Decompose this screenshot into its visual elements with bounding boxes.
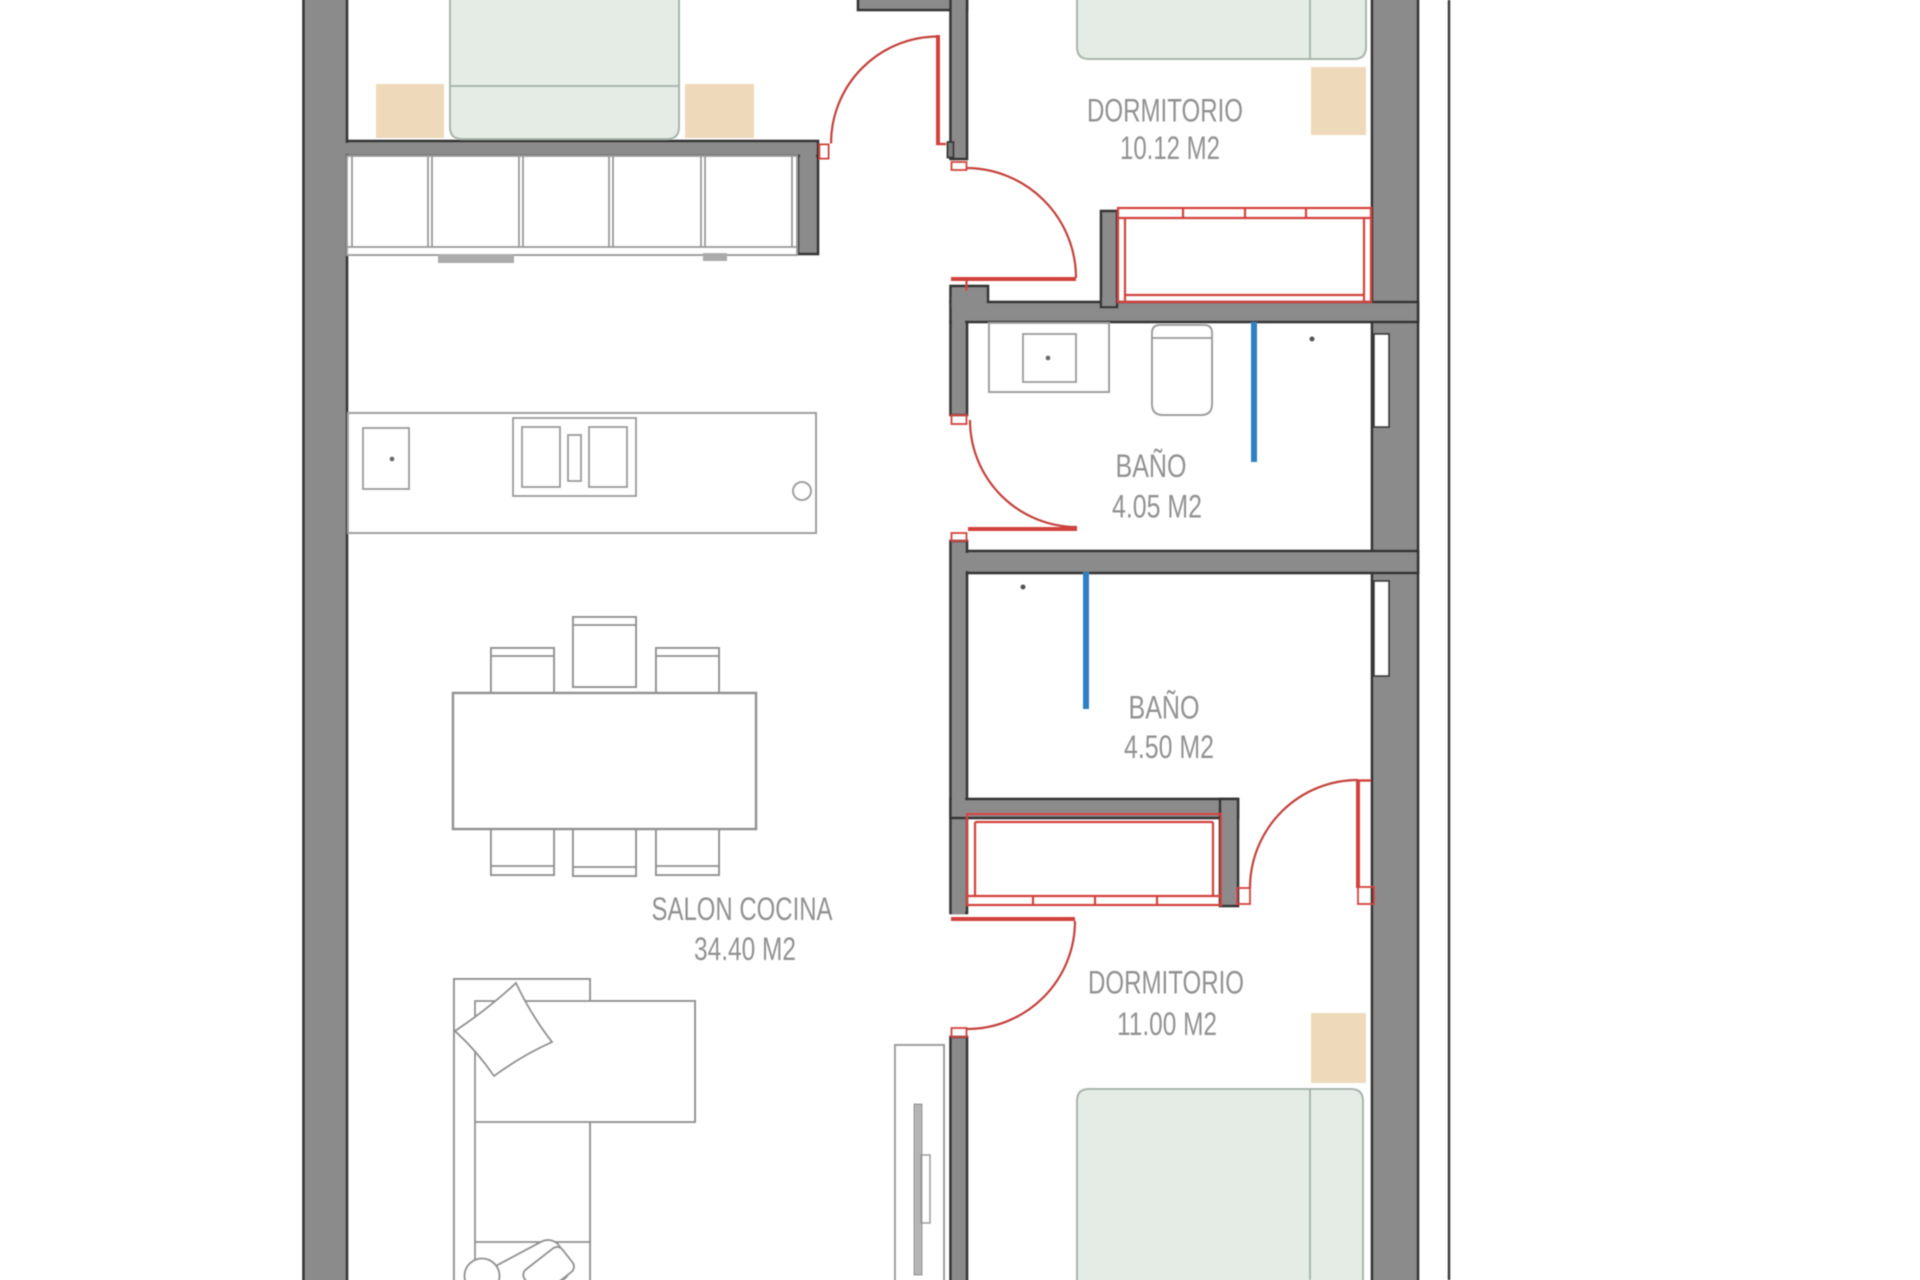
svg-text:11.00 M2: 11.00 M2 — [1117, 1006, 1217, 1042]
svg-text:BAÑO: BAÑO — [1116, 448, 1187, 484]
svg-text:SALON COCINA: SALON COCINA — [652, 891, 833, 927]
svg-text:34.40 M2: 34.40 M2 — [694, 931, 796, 967]
svg-text:4.05 M2: 4.05 M2 — [1112, 489, 1202, 525]
svg-text:DORMITORIO: DORMITORIO — [1088, 965, 1244, 1001]
svg-text:DORMITORIO: DORMITORIO — [1087, 93, 1243, 129]
svg-text:10.12 M2: 10.12 M2 — [1120, 130, 1220, 166]
svg-text:4.50 M2: 4.50 M2 — [1124, 729, 1214, 765]
svg-text:BAÑO: BAÑO — [1129, 690, 1200, 726]
